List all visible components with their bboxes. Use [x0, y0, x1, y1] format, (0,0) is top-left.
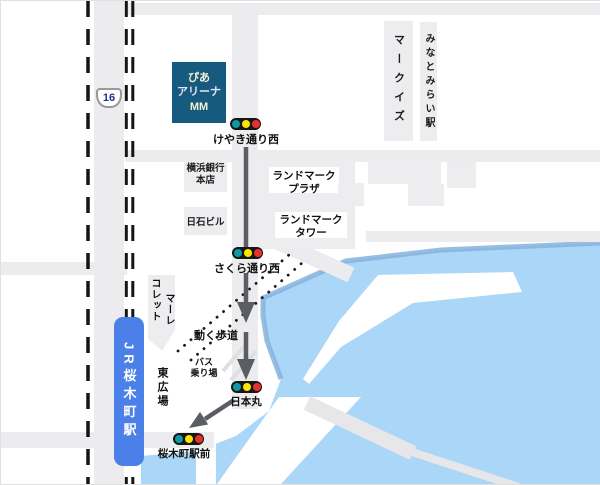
sakuragicho-ekimae-label: 桜木町駅前 [158, 446, 211, 461]
road-top [125, 3, 600, 15]
road-right-waterfront [366, 231, 600, 242]
building-block [447, 162, 476, 188]
traffic-light-icon [173, 433, 204, 445]
traffic-lamp-red [254, 249, 262, 257]
building-block [338, 183, 364, 206]
yokohama-bank-label-line2: 本店 [196, 175, 215, 186]
moving-walkway-label: 動く歩道 [194, 327, 238, 343]
arena-label-line2: アリーナ [172, 85, 226, 100]
route-arrowhead [189, 412, 208, 428]
arena-label-line3: MM [172, 100, 226, 115]
traffic-light-icon [232, 247, 263, 259]
collet-label: コレット [147, 278, 162, 322]
route-map: 横浜銀行 本店 日石ビル ランドマーク プラザ ランドマーク タワー マークイズ… [0, 0, 600, 485]
keyaki-dori-nishi-label: けやき通り西 [213, 131, 279, 147]
traffic-lamp-teal [233, 383, 241, 391]
traffic-lamp-teal [175, 435, 183, 443]
building-markis: マークイズ [384, 21, 413, 141]
traffic-lamp-teal [234, 249, 242, 257]
bus-stop-label: バス 乗り場 [190, 357, 217, 379]
jr-sakuragicho-station: JR桜木町駅 [114, 317, 144, 466]
traffic-lamp-yellow [243, 383, 251, 391]
building-block [368, 161, 441, 184]
yokohama-bank-label-line1: 横浜銀行 [186, 163, 224, 174]
landmark-plaza-label: ランドマーク プラザ [273, 170, 336, 195]
nihonmaru-label: 日本丸 [230, 394, 262, 409]
traffic-lamp-red [252, 120, 260, 128]
jr-station-label: JR桜木町駅 [120, 342, 139, 441]
traffic-lamp-yellow [185, 435, 193, 443]
east-plaza-label: 東広場 [154, 367, 170, 409]
route-16-number: 16 [103, 92, 115, 104]
traffic-light-icon [231, 381, 262, 393]
traffic-lamp-teal [232, 120, 240, 128]
arena-label-line1: ぴあ [172, 71, 226, 86]
pia-arena-mm: ぴあ アリーナ MM [172, 62, 226, 123]
building-yokohama-bank: 横浜銀行 本店 [184, 158, 227, 192]
building-nisseki: 日石ビル [184, 207, 227, 235]
building-block [408, 184, 444, 206]
markis-label: マークイズ [391, 34, 407, 129]
traffic-lamp-yellow [244, 249, 252, 257]
traffic-lamp-yellow [242, 120, 250, 128]
nisseki-label: 日石ビル [186, 214, 224, 228]
traffic-lamp-red [195, 435, 203, 443]
traffic-lamp-red [253, 383, 261, 391]
sakura-dori-nishi-label: さくら通り西 [214, 260, 280, 276]
mare-label: マーレ [161, 293, 176, 326]
traffic-light-icon [230, 118, 261, 130]
minatomirai-station-label: みなとみらい駅 [421, 33, 436, 131]
minatomirai-station-box: みなとみらい駅 [420, 22, 437, 141]
road-left-cross [1, 262, 127, 275]
landmark-tower-label: ランドマーク タワー [280, 214, 343, 239]
